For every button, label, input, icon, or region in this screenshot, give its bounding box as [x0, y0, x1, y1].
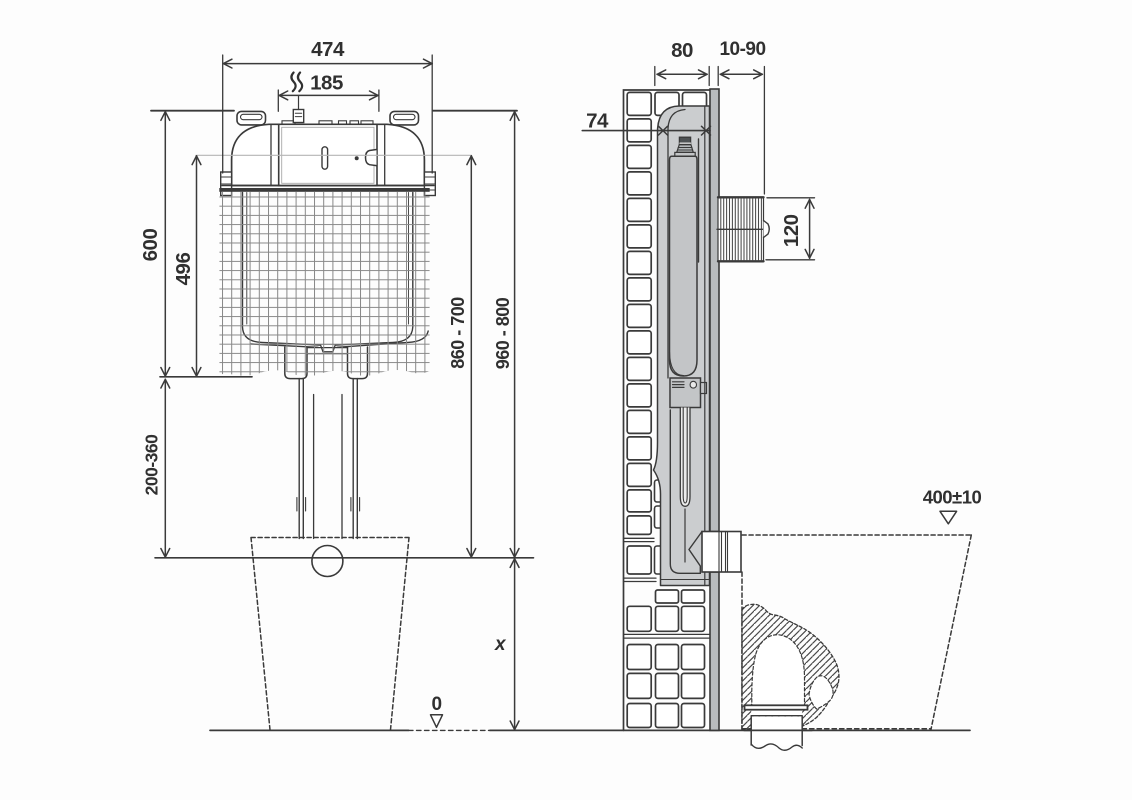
svg-text:200-360: 200-360 [142, 434, 162, 495]
svg-text:860 - 700: 860 - 700 [448, 297, 468, 369]
svg-text:474: 474 [311, 38, 345, 61]
svg-text:600: 600 [139, 229, 162, 262]
svg-text:0: 0 [431, 694, 441, 715]
svg-text:496: 496 [172, 253, 195, 286]
svg-text:400±10: 400±10 [923, 487, 982, 508]
svg-text:10-90: 10-90 [719, 39, 765, 60]
svg-text:185: 185 [310, 72, 343, 95]
svg-text:120: 120 [780, 214, 803, 247]
svg-text:74: 74 [586, 110, 609, 133]
svg-text:80: 80 [671, 39, 693, 62]
svg-text:x: x [494, 634, 507, 655]
svg-text:960 - 800: 960 - 800 [493, 297, 513, 369]
